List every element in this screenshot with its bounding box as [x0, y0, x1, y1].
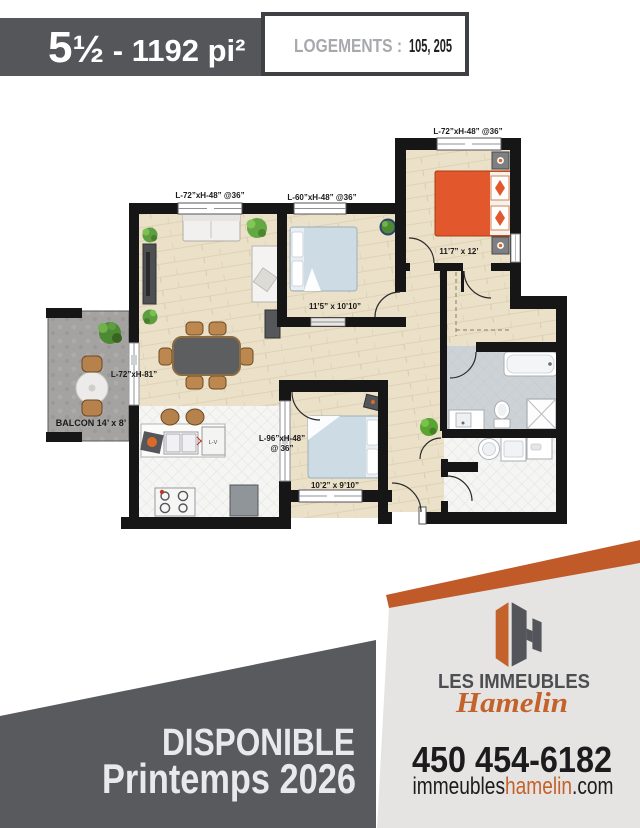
svg-text:11’7” x 12’: 11’7” x 12’: [439, 247, 478, 256]
svg-text:105, 205: 105, 205: [409, 36, 452, 56]
svg-text:BALCON 14’ x 8’: BALCON 14’ x 8’: [56, 418, 127, 428]
svg-text:L-V: L-V: [209, 440, 218, 446]
svg-text:LOGEMENTS :: LOGEMENTS :: [294, 36, 402, 56]
svg-text:Printemps 2026: Printemps 2026: [102, 755, 356, 802]
svg-text:@ 36”: @ 36”: [271, 444, 294, 453]
svg-text:L-72”xH-48” @36”: L-72”xH-48” @36”: [175, 191, 244, 200]
svg-text:L-60”xH-48” @36”: L-60”xH-48” @36”: [287, 193, 356, 202]
svg-text:L-72”xH-48” @36”: L-72”xH-48” @36”: [433, 127, 502, 136]
svg-text:11’5” x 10’10”: 11’5” x 10’10”: [309, 302, 361, 311]
svg-text:L-96”xH-48”: L-96”xH-48”: [259, 434, 305, 443]
svg-text:10’2” x 9’10”: 10’2” x 9’10”: [311, 481, 359, 490]
svg-text:Hamelin: Hamelin: [455, 687, 568, 719]
svg-text:immeubleshamelin.com: immeubleshamelin.com: [413, 773, 614, 800]
svg-text:L-72”xH-81”: L-72”xH-81”: [111, 370, 157, 379]
